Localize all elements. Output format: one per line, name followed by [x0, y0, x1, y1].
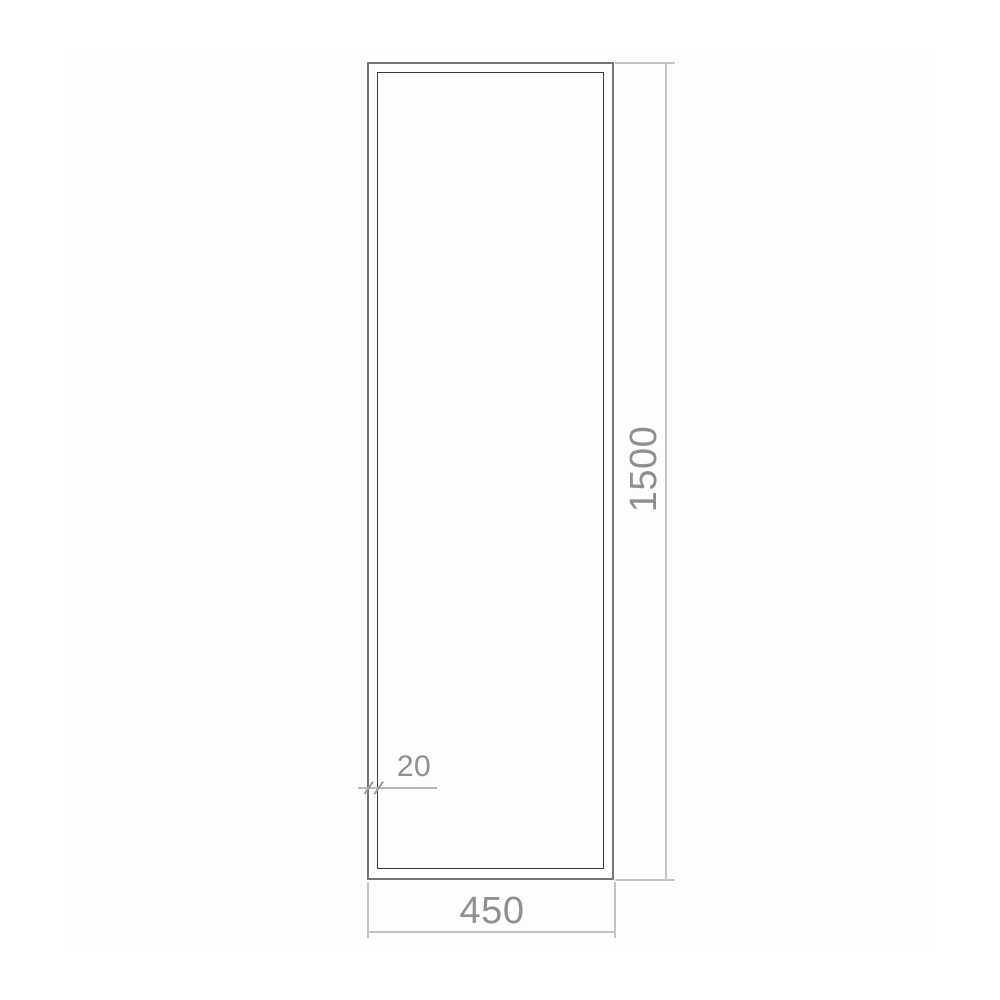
- height-dimension-line: [665, 63, 667, 880]
- height-dimension-label: 1500: [625, 426, 663, 513]
- width-extension-line-left: [367, 882, 369, 938]
- drawing-stage: 1500 450 20: [0, 0, 1000, 1000]
- thickness-dimension-label: 20: [397, 752, 431, 782]
- thickness-dimension-line: [358, 787, 437, 789]
- width-extension-line-right: [614, 882, 616, 938]
- width-dimension-label: 450: [460, 892, 525, 930]
